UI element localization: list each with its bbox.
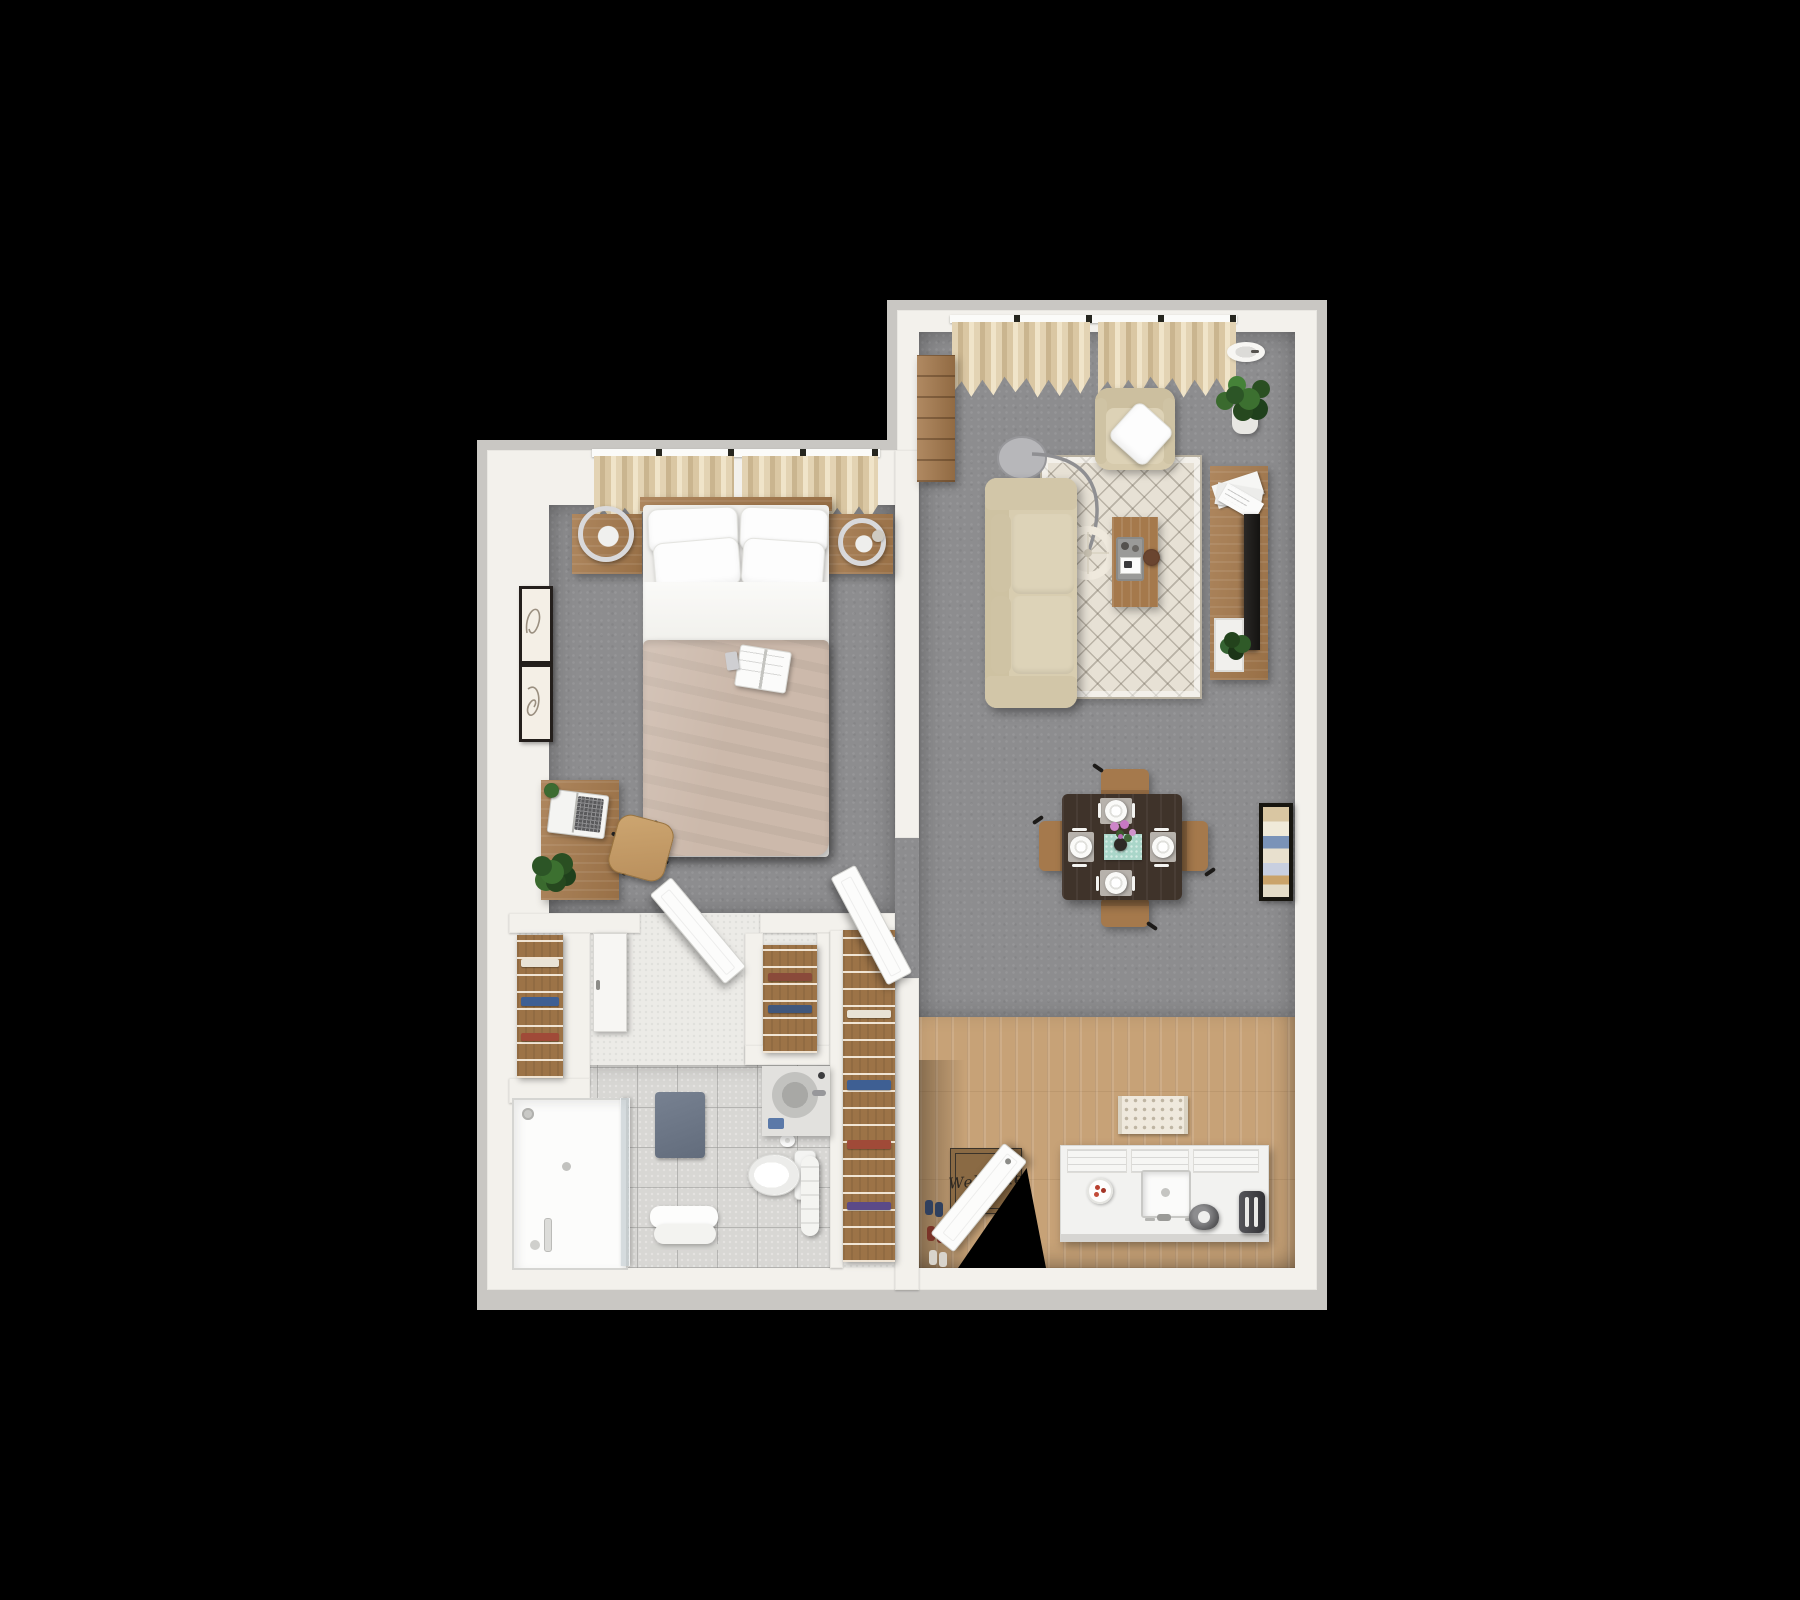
dinner-plate: [1105, 800, 1127, 822]
dining-chair: [1101, 897, 1149, 927]
tray-cup: [1132, 545, 1139, 552]
dinner-plate: [1105, 872, 1127, 894]
divider-wall-upper: [895, 450, 919, 838]
recessed-ceiling-light: [1227, 342, 1265, 362]
cutlery: [1154, 828, 1169, 831]
wall-art-squiggle: [522, 667, 544, 733]
cutlery: [1072, 828, 1087, 831]
card-photo: [1124, 561, 1132, 568]
small-closet-wall-right: [817, 933, 830, 1063]
closet-item: [847, 1140, 891, 1149]
wall-art-squiggle: [522, 589, 544, 655]
small-closet-shelves: [763, 945, 817, 1053]
vanity-sink: [762, 1066, 830, 1136]
cutlery: [1096, 876, 1099, 891]
cutlery: [1132, 803, 1135, 818]
flowers-pink: [1110, 822, 1119, 831]
white-wardrobe-door: [593, 933, 627, 1032]
tall-dresser: [917, 355, 955, 482]
closet-item: [521, 959, 559, 967]
walk-in-shower: [512, 1098, 628, 1270]
shower-head: [522, 1108, 534, 1120]
cutlery: [1154, 864, 1169, 867]
light-notch: [1251, 350, 1259, 353]
dinner-plate: [1070, 836, 1092, 858]
sofa-back-cushion: [991, 596, 1011, 674]
sofa-armrest: [985, 478, 1077, 510]
closet-item: [847, 1080, 891, 1090]
linen-closet-partition: [563, 933, 590, 1085]
ring-lamp-left: [578, 506, 634, 562]
tv-console: [1210, 466, 1268, 680]
closet-item: [521, 997, 559, 1006]
television: [1244, 514, 1260, 650]
toilet-bowl: [748, 1154, 800, 1196]
wardrobe-door-handle: [596, 980, 600, 990]
soap-bottle: [818, 1072, 825, 1079]
dinner-plate: [1152, 836, 1174, 858]
sofa-back-cushion: [991, 514, 1011, 592]
linen-closet-shelves: [517, 935, 563, 1078]
potted-plant-foliage: [1226, 386, 1244, 404]
snack-food: [1095, 1185, 1100, 1190]
bench-with-towel: [648, 1204, 722, 1252]
dining-chair: [1178, 821, 1208, 871]
counter-drawers: [1193, 1149, 1259, 1173]
bench-legs: [650, 1244, 720, 1250]
console-plant: [1224, 632, 1240, 648]
divider-wall-lower: [895, 978, 919, 1290]
phone-on-bed: [725, 651, 739, 670]
closet-item: [768, 973, 812, 981]
toaster-slot: [1245, 1197, 1249, 1227]
towel-fold: [654, 1224, 716, 1244]
bath-mat: [655, 1092, 705, 1158]
kitchen-rug: [1118, 1096, 1188, 1134]
closet-item: [768, 1005, 812, 1013]
living-curtain-rod: [950, 315, 1237, 323]
sofa-seat-cushion: [1012, 596, 1074, 674]
closet-item: [521, 1033, 559, 1041]
tray-cup: [1121, 542, 1129, 550]
wall-art-top: [519, 586, 553, 664]
office-chair-seat: [605, 812, 677, 885]
kettle-lid: [1198, 1211, 1210, 1223]
hand-towel: [768, 1118, 784, 1129]
entry-shoes: [925, 1200, 933, 1215]
sofa: [985, 478, 1077, 708]
toaster: [1239, 1191, 1265, 1233]
dining-table: [1062, 794, 1182, 900]
towel-stack: [801, 1156, 819, 1236]
kitchen-counter: [1060, 1145, 1269, 1242]
potted-plant: [1232, 404, 1258, 434]
shower-control: [530, 1240, 540, 1250]
nightstand-dish: [872, 530, 884, 542]
office-chair: [604, 812, 676, 884]
floor-plant: [532, 856, 552, 876]
cutlery: [1132, 876, 1135, 891]
counter-drawers: [1067, 1149, 1127, 1173]
bed-top-sheet: [643, 582, 829, 644]
snack-plate: [1087, 1178, 1113, 1204]
desk-plant-small: [544, 783, 559, 798]
hand-shower-fixture: [544, 1218, 552, 1252]
sofa-seat-cushion: [1012, 514, 1074, 594]
tray-card: [1120, 557, 1141, 574]
flower-vase: [1114, 838, 1127, 851]
bedroom-bottom-wall-left: [509, 913, 640, 933]
wall-art-frame: [1259, 803, 1293, 901]
floor-plan-canvas: Welcome: [0, 0, 1800, 1600]
sofa-armrest: [985, 676, 1077, 708]
wood-bowl: [1143, 549, 1160, 566]
coffee-table: [1112, 517, 1158, 607]
bathroom-right-wall: [830, 930, 843, 1268]
toaster-slot: [1254, 1197, 1258, 1227]
shower-glass-panel: [620, 1098, 630, 1266]
sink-drain: [1161, 1188, 1170, 1197]
wall-art-bottom: [519, 664, 553, 742]
closet-item: [847, 1202, 891, 1210]
small-closet-wall-left: [745, 933, 763, 1063]
closet-item: [847, 1010, 891, 1018]
faucet: [1157, 1214, 1171, 1221]
entry-door-handle: [1004, 1157, 1012, 1165]
kettle: [1189, 1204, 1219, 1230]
ring-lamp-right: [838, 518, 886, 566]
flower-stems: [1116, 830, 1124, 838]
sink: [1141, 1170, 1191, 1218]
serving-tray: [1116, 537, 1144, 581]
vanity-faucet: [812, 1090, 826, 1096]
cutlery: [1098, 803, 1101, 818]
floor-drain: [562, 1162, 571, 1171]
lamp-base-disc: [998, 437, 1046, 479]
laptop-keyboard: [574, 796, 604, 833]
bedroom-curtain-rod: [592, 449, 880, 457]
vanity-basin: [772, 1072, 818, 1118]
cutlery: [1072, 864, 1087, 867]
book-on-bed: [734, 644, 792, 694]
